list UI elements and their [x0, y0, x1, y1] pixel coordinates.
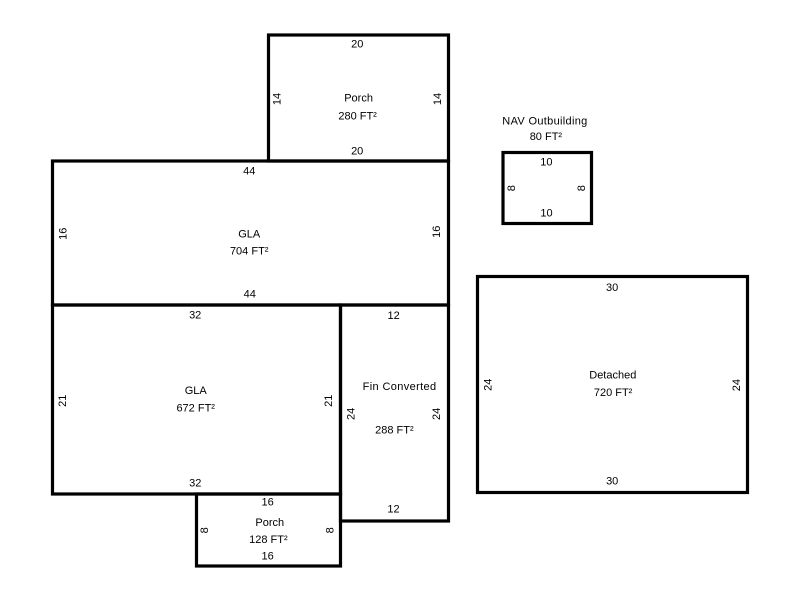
svg-text:24: 24 — [731, 379, 743, 391]
svg-text:24: 24 — [346, 408, 358, 420]
svg-text:16: 16 — [261, 551, 273, 563]
svg-text:10: 10 — [540, 157, 552, 169]
svg-text:Porch: Porch — [344, 93, 373, 105]
svg-text:8: 8 — [576, 185, 588, 191]
svg-text:672 FT²: 672 FT² — [176, 402, 215, 414]
svg-text:32: 32 — [189, 310, 201, 322]
svg-text:20: 20 — [351, 39, 363, 51]
svg-text:32: 32 — [189, 478, 201, 490]
svg-text:8: 8 — [324, 527, 336, 533]
svg-text:12: 12 — [387, 504, 399, 516]
svg-text:16: 16 — [431, 226, 443, 238]
svg-text:128 FT²: 128 FT² — [249, 534, 288, 546]
svg-text:14: 14 — [432, 93, 444, 105]
svg-text:704 FT²: 704 FT² — [230, 245, 269, 257]
svg-text:24: 24 — [482, 379, 494, 391]
svg-text:280 FT²: 280 FT² — [338, 111, 377, 123]
svg-text:21: 21 — [57, 395, 69, 407]
svg-text:Porch: Porch — [255, 517, 284, 529]
svg-text:12: 12 — [387, 310, 399, 322]
svg-text:20: 20 — [351, 146, 363, 158]
svg-text:14: 14 — [271, 93, 283, 105]
svg-text:24: 24 — [431, 408, 443, 420]
svg-text:30: 30 — [606, 282, 618, 294]
svg-text:44: 44 — [243, 166, 255, 178]
svg-text:NAV Outbuilding: NAV Outbuilding — [502, 116, 587, 128]
svg-text:30: 30 — [606, 475, 618, 487]
svg-text:Detached: Detached — [589, 370, 636, 382]
svg-text:GLA: GLA — [185, 385, 208, 397]
svg-text:288 FT²: 288 FT² — [375, 425, 414, 437]
svg-text:16: 16 — [58, 228, 70, 240]
svg-text:21: 21 — [323, 395, 335, 407]
svg-text:8: 8 — [506, 185, 518, 191]
svg-text:44: 44 — [244, 288, 256, 300]
svg-text:10: 10 — [540, 207, 552, 219]
svg-text:16: 16 — [261, 497, 273, 509]
svg-text:80 FT²: 80 FT² — [530, 131, 563, 143]
svg-text:Fin Converted: Fin Converted — [363, 381, 437, 393]
svg-text:720 FT²: 720 FT² — [594, 387, 633, 399]
svg-text:8: 8 — [199, 527, 211, 533]
svg-text:GLA: GLA — [238, 228, 261, 240]
